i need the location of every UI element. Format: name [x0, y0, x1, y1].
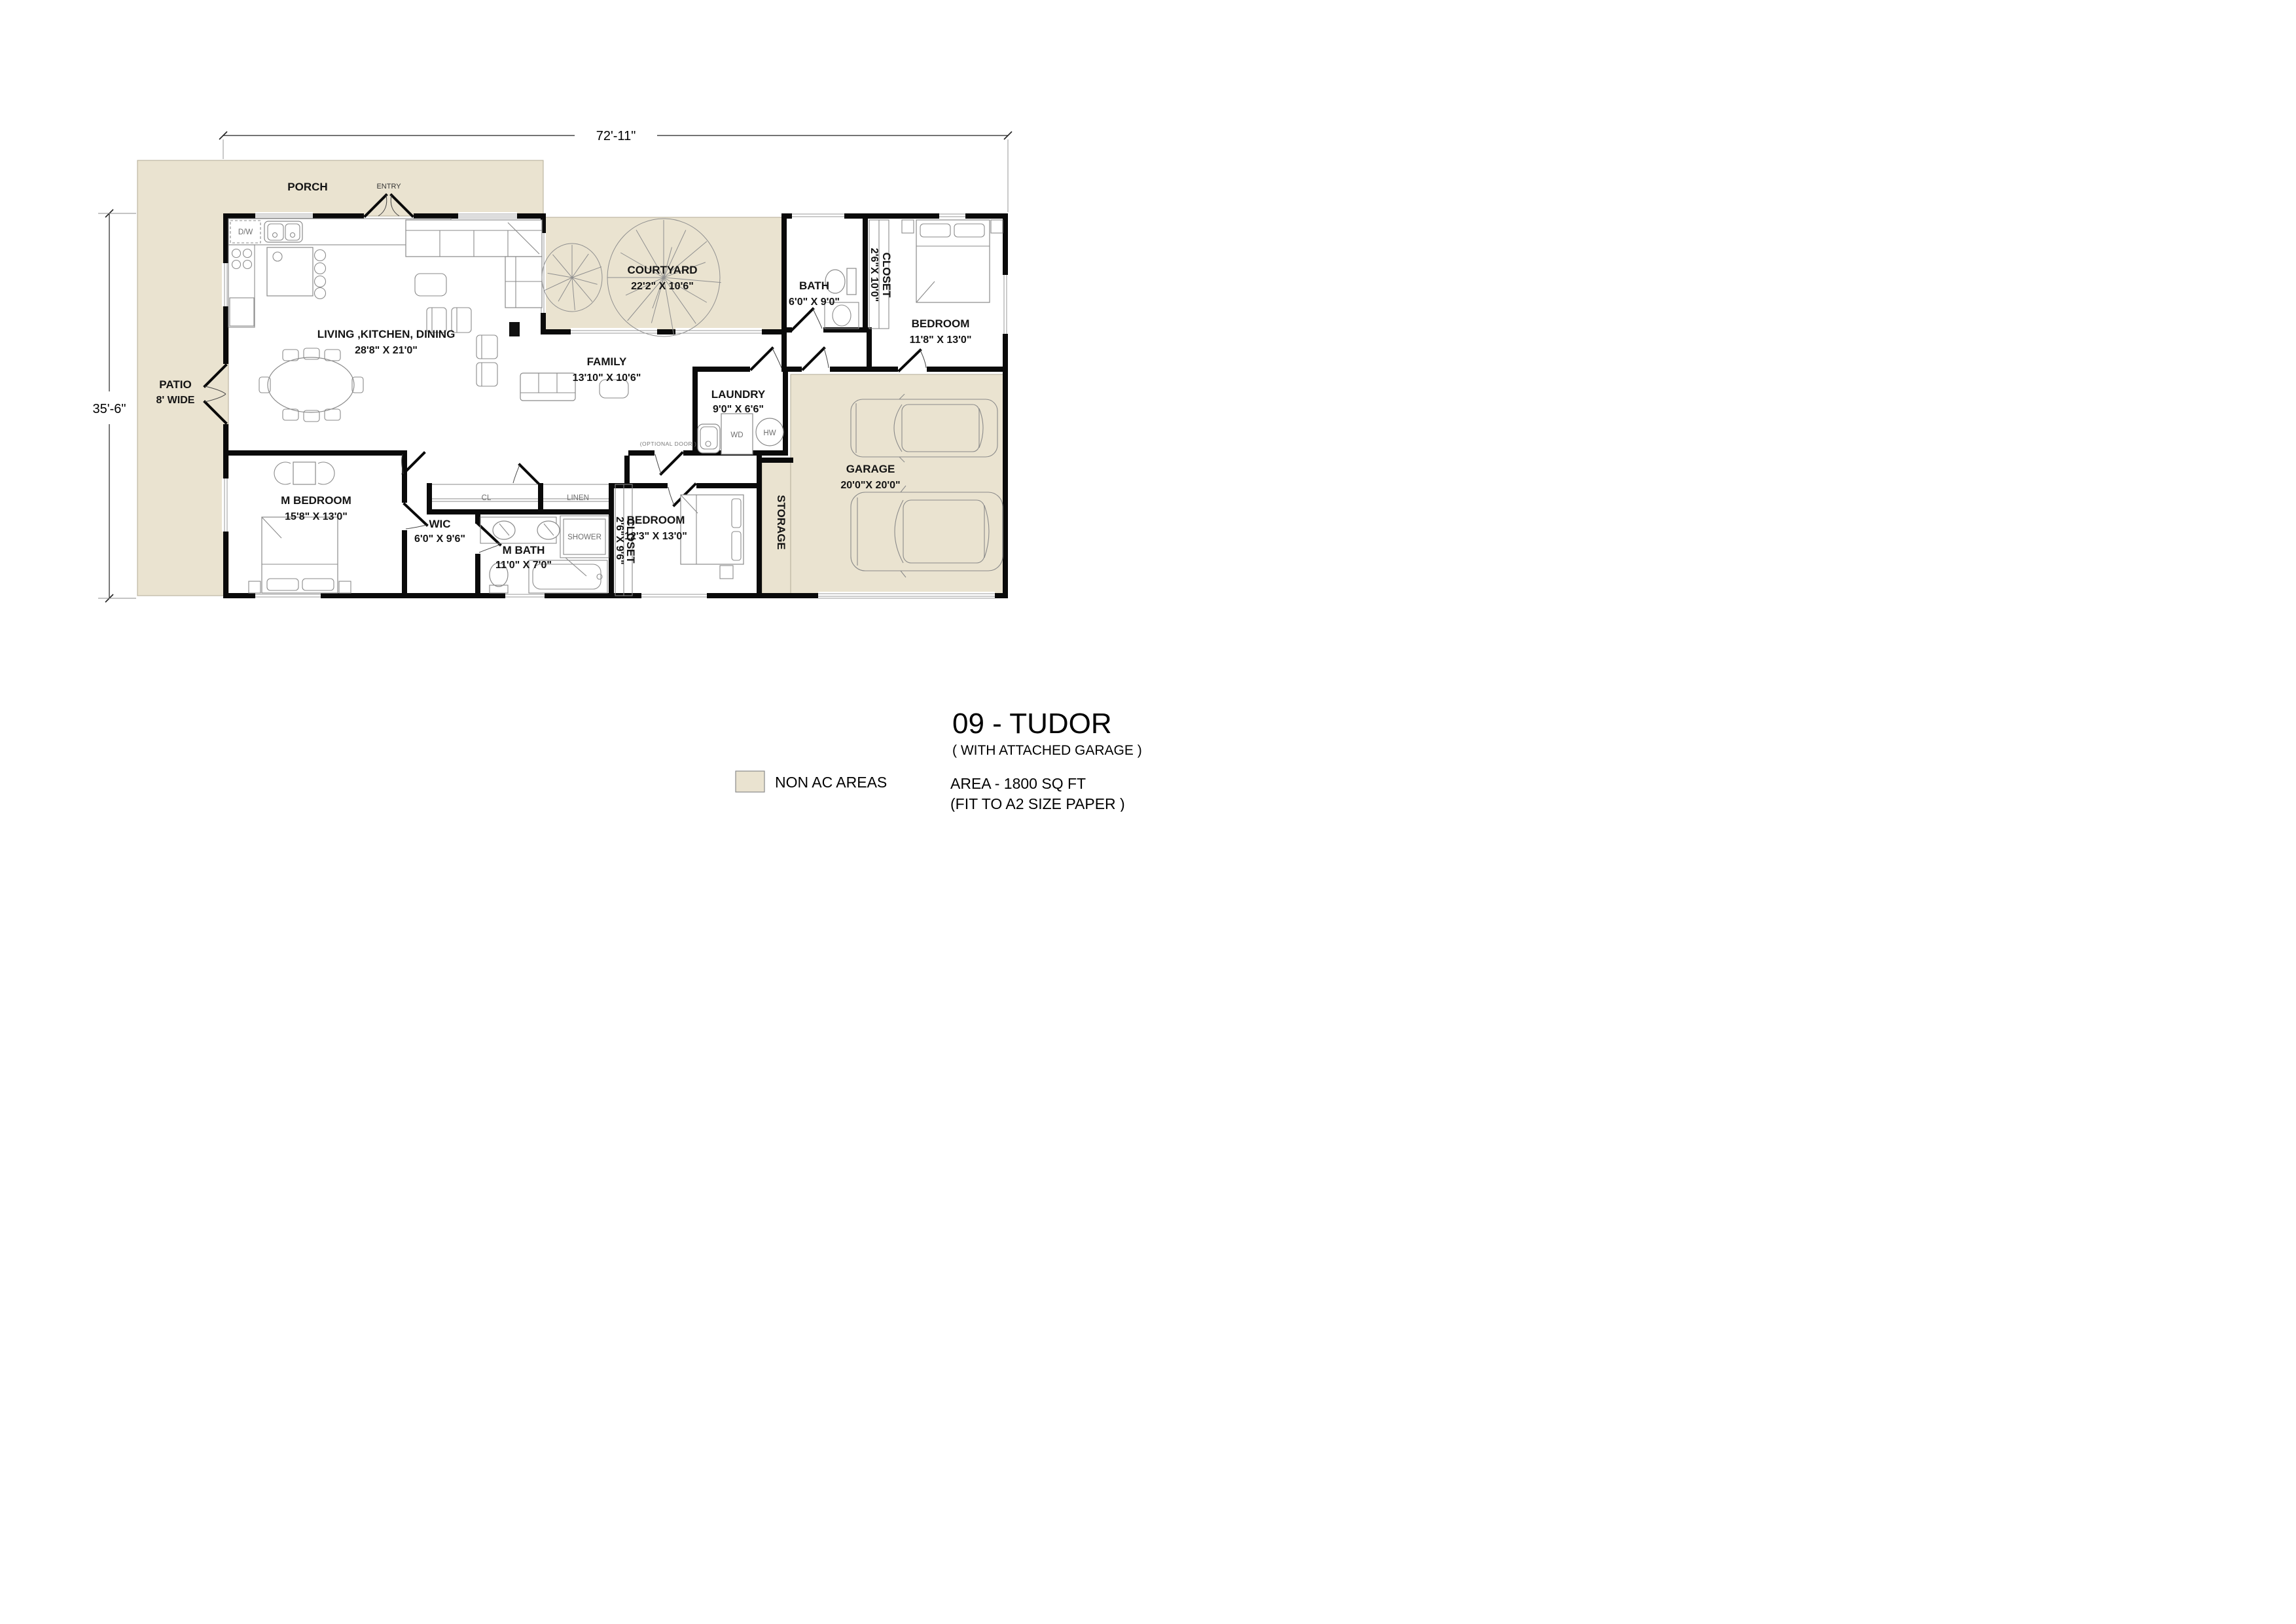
nightstand — [991, 220, 1003, 233]
floor-plan-page: 72'-11" 35'-6" — [0, 0, 1148, 812]
closet2-size: 2'6"X 9'6" — [614, 516, 625, 565]
curved-chair — [274, 462, 291, 484]
linen-label: LINEN — [567, 494, 589, 502]
garage-label: GARAGE — [846, 463, 895, 475]
bedroom2-size: 12'3" X 13'0" — [624, 531, 687, 542]
laundry-size: 9'0" X 6'6" — [713, 404, 764, 415]
family-size: 13'10" X 10'6" — [573, 372, 641, 384]
water-heater-label: HW — [763, 429, 776, 437]
overall-height-dim: 35'-6" — [93, 402, 126, 416]
garage-door — [818, 592, 995, 600]
side-table — [509, 322, 520, 336]
dining-table — [268, 357, 354, 412]
family-furniture — [476, 335, 628, 401]
plan-area: AREA - 1800 SQ FT — [950, 775, 1086, 792]
garage-hall-door — [803, 348, 829, 369]
courtyard-label: COURTYARD — [627, 264, 697, 276]
dining-furniture — [259, 348, 363, 422]
legend-label: NON AC AREAS — [775, 774, 887, 791]
bedroom2-label: BEDROOM — [627, 514, 685, 526]
coffee-table — [415, 274, 446, 296]
living-label: LIVING ,KITCHEN, DINING — [317, 328, 456, 340]
cl-door — [513, 465, 539, 484]
optional-door-label: (OPTIONAL DOOR ) — [640, 441, 697, 447]
legend-swatch — [736, 771, 764, 792]
bedroom1-size: 11'8" X 13'0" — [910, 334, 972, 346]
m-bedroom-label: M BEDROOM — [281, 494, 351, 507]
bed — [262, 517, 338, 593]
window — [939, 212, 965, 220]
m-bath-label: M BATH — [503, 544, 545, 556]
window — [675, 328, 762, 336]
garage-size: 20'0"X 20'0" — [840, 480, 900, 491]
m-bedroom-furniture — [249, 462, 351, 593]
plan-paper: (FIT TO A2 SIZE PAPER ) — [950, 795, 1125, 812]
bedroom1-label: BEDROOM — [912, 317, 970, 330]
nightstand — [339, 581, 351, 593]
courtyard-size: 22'2" X 10'6" — [631, 281, 694, 292]
optional-door — [655, 453, 682, 474]
sink — [493, 521, 515, 539]
curved-chair — [318, 462, 334, 484]
wic-label: WIC — [429, 518, 450, 530]
storage-label: STORAGE — [775, 495, 787, 550]
window — [458, 212, 517, 220]
m-bath-size: 11'0" X 7'0" — [495, 560, 552, 571]
bedroom1-door — [899, 350, 926, 370]
floor-plan-svg: 72'-11" 35'-6" — [0, 0, 1148, 812]
patio-label: PATIO — [159, 378, 191, 391]
window — [792, 212, 844, 220]
plan-title: 09 - TUDOR — [952, 708, 1112, 740]
cooktop-burner — [232, 249, 241, 258]
patio-size: 8' WIDE — [156, 395, 195, 406]
window — [1001, 275, 1009, 334]
bath-label: BATH — [799, 280, 829, 292]
family-sofa — [520, 373, 575, 401]
window — [222, 478, 230, 532]
wic-size: 6'0" X 9'6" — [414, 533, 465, 545]
laundry-door — [751, 348, 781, 369]
wic-door — [404, 504, 427, 529]
title-block: 09 - TUDOR ( WITH ATTACHED GARAGE ) AREA… — [736, 708, 1142, 812]
dishwasher-label: D/W — [238, 228, 253, 236]
cl-label: CL — [482, 494, 492, 502]
washer-dryer-label: WD — [730, 431, 743, 439]
m-bedroom-size: 15'8" X 13'0" — [285, 511, 348, 522]
shower-label: SHOWER — [567, 533, 601, 541]
living-size: 28'8" X 21'0" — [355, 345, 418, 356]
family-chair — [476, 335, 497, 359]
entry-label: ENTRY — [376, 183, 401, 190]
nightstand — [249, 581, 260, 593]
oven — [230, 298, 254, 326]
laundry-label: LAUNDRY — [711, 388, 766, 401]
closet1-size: 2'6"X 10'0" — [869, 248, 880, 302]
family-label: FAMILY — [587, 355, 627, 368]
nightstand — [902, 220, 914, 233]
bath-door — [792, 309, 822, 330]
nightstand — [720, 566, 733, 579]
window — [641, 592, 707, 600]
window — [571, 328, 657, 336]
family-chair — [476, 363, 497, 386]
porch-label: PORCH — [287, 181, 327, 193]
kitchen-island — [267, 247, 313, 296]
stool — [315, 250, 326, 261]
sink — [537, 521, 560, 539]
plan-subtitle: ( WITH ATTACHED GARAGE ) — [952, 743, 1142, 758]
living-furniture — [406, 220, 542, 336]
bath-size: 6'0" X 9'0" — [789, 297, 840, 308]
overall-width-dim: 72'-11" — [596, 129, 636, 143]
bedroom-table — [293, 462, 315, 484]
closet1-label: CLOSET — [880, 253, 893, 298]
bedroom2-furniture — [681, 495, 744, 579]
